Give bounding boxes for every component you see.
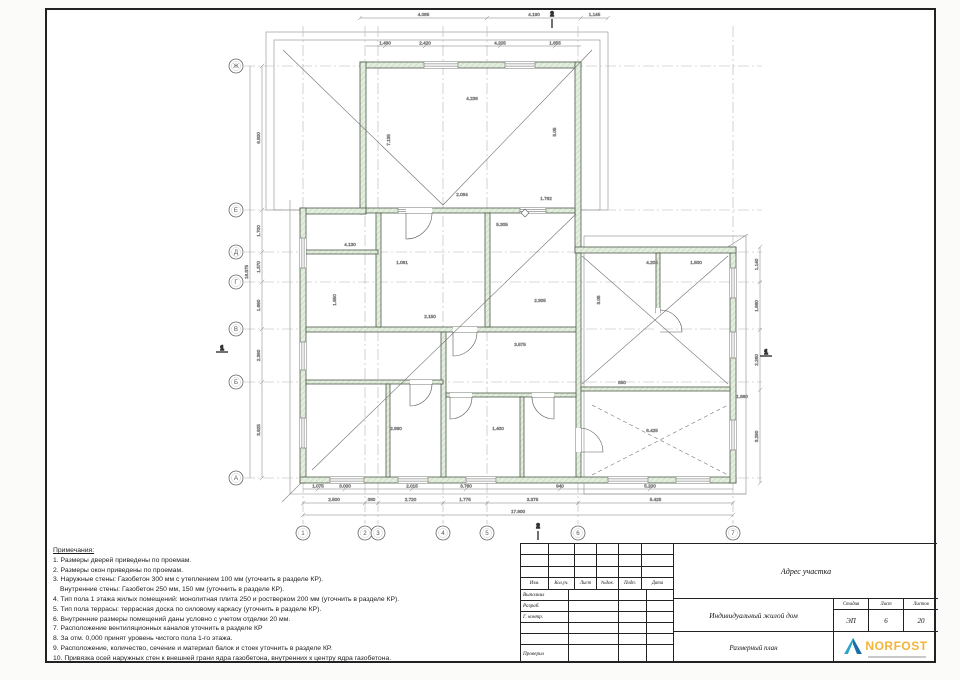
note-line: Внутренние стены: Газобетон 250 мм, 150 … (53, 585, 521, 595)
stamp-signature-row (521, 623, 674, 634)
svg-text:4: 4 (441, 530, 445, 537)
stamp-signature-row: Проверил (521, 645, 674, 663)
svg-text:1.075: 1.075 (312, 483, 324, 488)
note-line: 1. Размеры дверей приведены по проемам. (53, 556, 521, 566)
note-line: 5. Тип пола террасы: террасная доска по … (53, 605, 521, 615)
title-block: Изм. Кол.уч. Лист №док. Подп. Дата Выпол… (520, 543, 937, 662)
stage-label: Стадия (834, 599, 869, 610)
svg-text:2: 2 (536, 524, 540, 530)
notes-block: Примечания: 1. Размеры дверей приведены … (47, 544, 527, 665)
stamp-signature-row: Разраб. (521, 601, 674, 612)
dimension-chains: 2.5003802.7201.7753.3755.4254.0854.1901.… (244, 12, 762, 517)
svg-text:6.800: 6.800 (256, 132, 261, 144)
svg-text:4.236: 4.236 (466, 96, 478, 101)
stamp-header-cell: Изм. (521, 578, 549, 590)
svg-text:3.575: 3.575 (514, 342, 526, 347)
svg-text:3.925: 3.925 (256, 424, 261, 436)
note-line: 2. Размеры окон приведены по проемам. (53, 566, 521, 576)
svg-text:1.140: 1.140 (754, 258, 759, 270)
sheets-total-label: Листов (904, 599, 938, 610)
svg-text:5.305: 5.305 (496, 222, 508, 227)
stamp-signature-row: Выполнил (521, 590, 674, 601)
note-line: 9. Расположение, количество, сечение и м… (53, 644, 521, 654)
svg-text:1: 1 (301, 530, 305, 537)
svg-text:3.760: 3.760 (460, 483, 472, 488)
svg-text:1.950: 1.950 (332, 294, 337, 306)
section-markers: 1122 (216, 12, 772, 540)
svg-text:2.305: 2.305 (534, 298, 546, 303)
svg-text:1: 1 (764, 350, 768, 356)
svg-text:2.860: 2.860 (390, 426, 402, 431)
svg-text:2.150: 2.150 (424, 314, 436, 319)
svg-text:3.08: 3.08 (596, 295, 601, 304)
svg-text:1.400: 1.400 (492, 426, 504, 431)
svg-text:1.690: 1.690 (256, 299, 261, 311)
svg-text:2.260: 2.260 (754, 354, 759, 366)
sheet-page: 2.5003802.7201.7753.3755.4254.0854.1901.… (0, 0, 960, 680)
stamp-header-cell: Кол.уч. (549, 578, 575, 590)
svg-text:1.370: 1.370 (256, 261, 261, 273)
svg-text:5: 5 (485, 530, 489, 537)
note-line: 6. Внутренние размеры помещений даны усл… (53, 615, 521, 625)
company-logo: NORFOST (834, 632, 938, 663)
stamp-row-label (521, 623, 569, 634)
amendment-grid (521, 544, 674, 578)
stamp-row-label: Разраб. (521, 601, 569, 612)
overhang-outlines (266, 32, 748, 502)
svg-text:4.130: 4.130 (344, 242, 356, 247)
svg-text:7: 7 (731, 530, 735, 537)
svg-text:2.500: 2.500 (328, 497, 340, 502)
svg-text:1.855: 1.855 (549, 40, 561, 45)
sheet-number-value: 6 (869, 610, 904, 632)
svg-text:5.05: 5.05 (552, 127, 557, 136)
svg-text:3: 3 (376, 530, 380, 537)
note-line: 7. Расположение вентиляционных каналов у… (53, 624, 521, 634)
svg-text:850: 850 (618, 380, 626, 385)
svg-text:380: 380 (368, 497, 376, 502)
walls (300, 62, 736, 483)
svg-text:17.900: 17.900 (511, 509, 525, 514)
stamp-row-label (521, 634, 569, 645)
svg-text:2: 2 (363, 530, 367, 537)
svg-text:1.700: 1.700 (256, 225, 261, 237)
svg-text:1.860: 1.860 (754, 300, 759, 312)
svg-text:1.860: 1.860 (736, 394, 748, 399)
svg-text:2.420: 2.420 (419, 40, 431, 45)
stamp-header-cell: Лист (575, 578, 597, 590)
svg-text:1.480: 1.480 (379, 40, 391, 45)
stamp-signature-row (521, 634, 674, 645)
logo-tagline (868, 656, 926, 658)
note-line: 8. За отм. 0,000 принят уровень чистого … (53, 634, 521, 644)
note-line: 4. Тип пола 1 этажа жилых помещений: мон… (53, 595, 521, 605)
diagonal-marks (283, 50, 728, 475)
svg-text:1.782: 1.782 (540, 196, 552, 201)
svg-text:4.205: 4.205 (494, 40, 506, 45)
svg-text:Е: Е (234, 207, 238, 214)
sheet-number-label: Лист (869, 599, 904, 610)
note-line: 3. Наружные стены: Газобетон 300 мм с ут… (53, 575, 521, 585)
svg-text:6.425: 6.425 (646, 428, 658, 433)
svg-text:Ж: Ж (233, 63, 239, 70)
stamp-row-label: Проверил (521, 645, 569, 663)
svg-text:940: 940 (556, 483, 564, 488)
object-address-cell: Адрес участка (674, 544, 938, 599)
svg-text:5.200: 5.200 (644, 483, 656, 488)
svg-text:4.190: 4.190 (528, 12, 540, 17)
svg-text:1.500: 1.500 (690, 260, 702, 265)
logo-triangle-icon (844, 638, 862, 654)
notes-title: Примечания: (53, 546, 521, 556)
svg-text:2.015: 2.015 (406, 483, 418, 488)
stamp-header-cell: Подп. (619, 578, 642, 590)
stamp-row-label: Г. контр. (521, 612, 569, 623)
svg-text:5.425: 5.425 (650, 497, 662, 502)
svg-text:6: 6 (576, 530, 580, 537)
note-line: 10. Привязка осей наружных стен к внешне… (53, 654, 521, 664)
drawing-title-cell: Размерный план (674, 632, 834, 663)
svg-text:1.061: 1.061 (396, 260, 408, 265)
svg-text:2: 2 (550, 12, 554, 18)
stage-value: ЭП (834, 610, 869, 632)
svg-text:16.875: 16.875 (244, 265, 249, 279)
sheets-total-value: 20 (904, 610, 938, 632)
svg-text:3.290: 3.290 (754, 430, 759, 442)
project-name-cell: Индивидуальный жилой дом (674, 599, 834, 632)
stamp-signature-row: Г. контр. (521, 612, 674, 623)
svg-text:2.720: 2.720 (405, 497, 417, 502)
stamp-row-label: Выполнил (521, 590, 569, 601)
axis-grid-lines (244, 26, 762, 524)
svg-text:1: 1 (220, 346, 224, 352)
svg-text:В: В (234, 326, 238, 333)
svg-text:3.000: 3.000 (339, 483, 351, 488)
svg-text:2.360: 2.360 (256, 349, 261, 361)
svg-text:1.775: 1.775 (459, 497, 471, 502)
svg-text:3.375: 3.375 (527, 497, 539, 502)
svg-text:1.145: 1.145 (589, 12, 601, 17)
stamp-header-cell: №док. (597, 578, 619, 590)
svg-text:4.205: 4.205 (646, 260, 658, 265)
logo-text: NORFOST (865, 639, 927, 653)
svg-text:Б: Б (234, 379, 238, 386)
svg-text:2.084: 2.084 (456, 192, 468, 197)
svg-text:4.085: 4.085 (418, 12, 430, 17)
svg-text:7.135: 7.135 (386, 134, 391, 146)
stamp-header-cell: Дата (642, 578, 674, 590)
